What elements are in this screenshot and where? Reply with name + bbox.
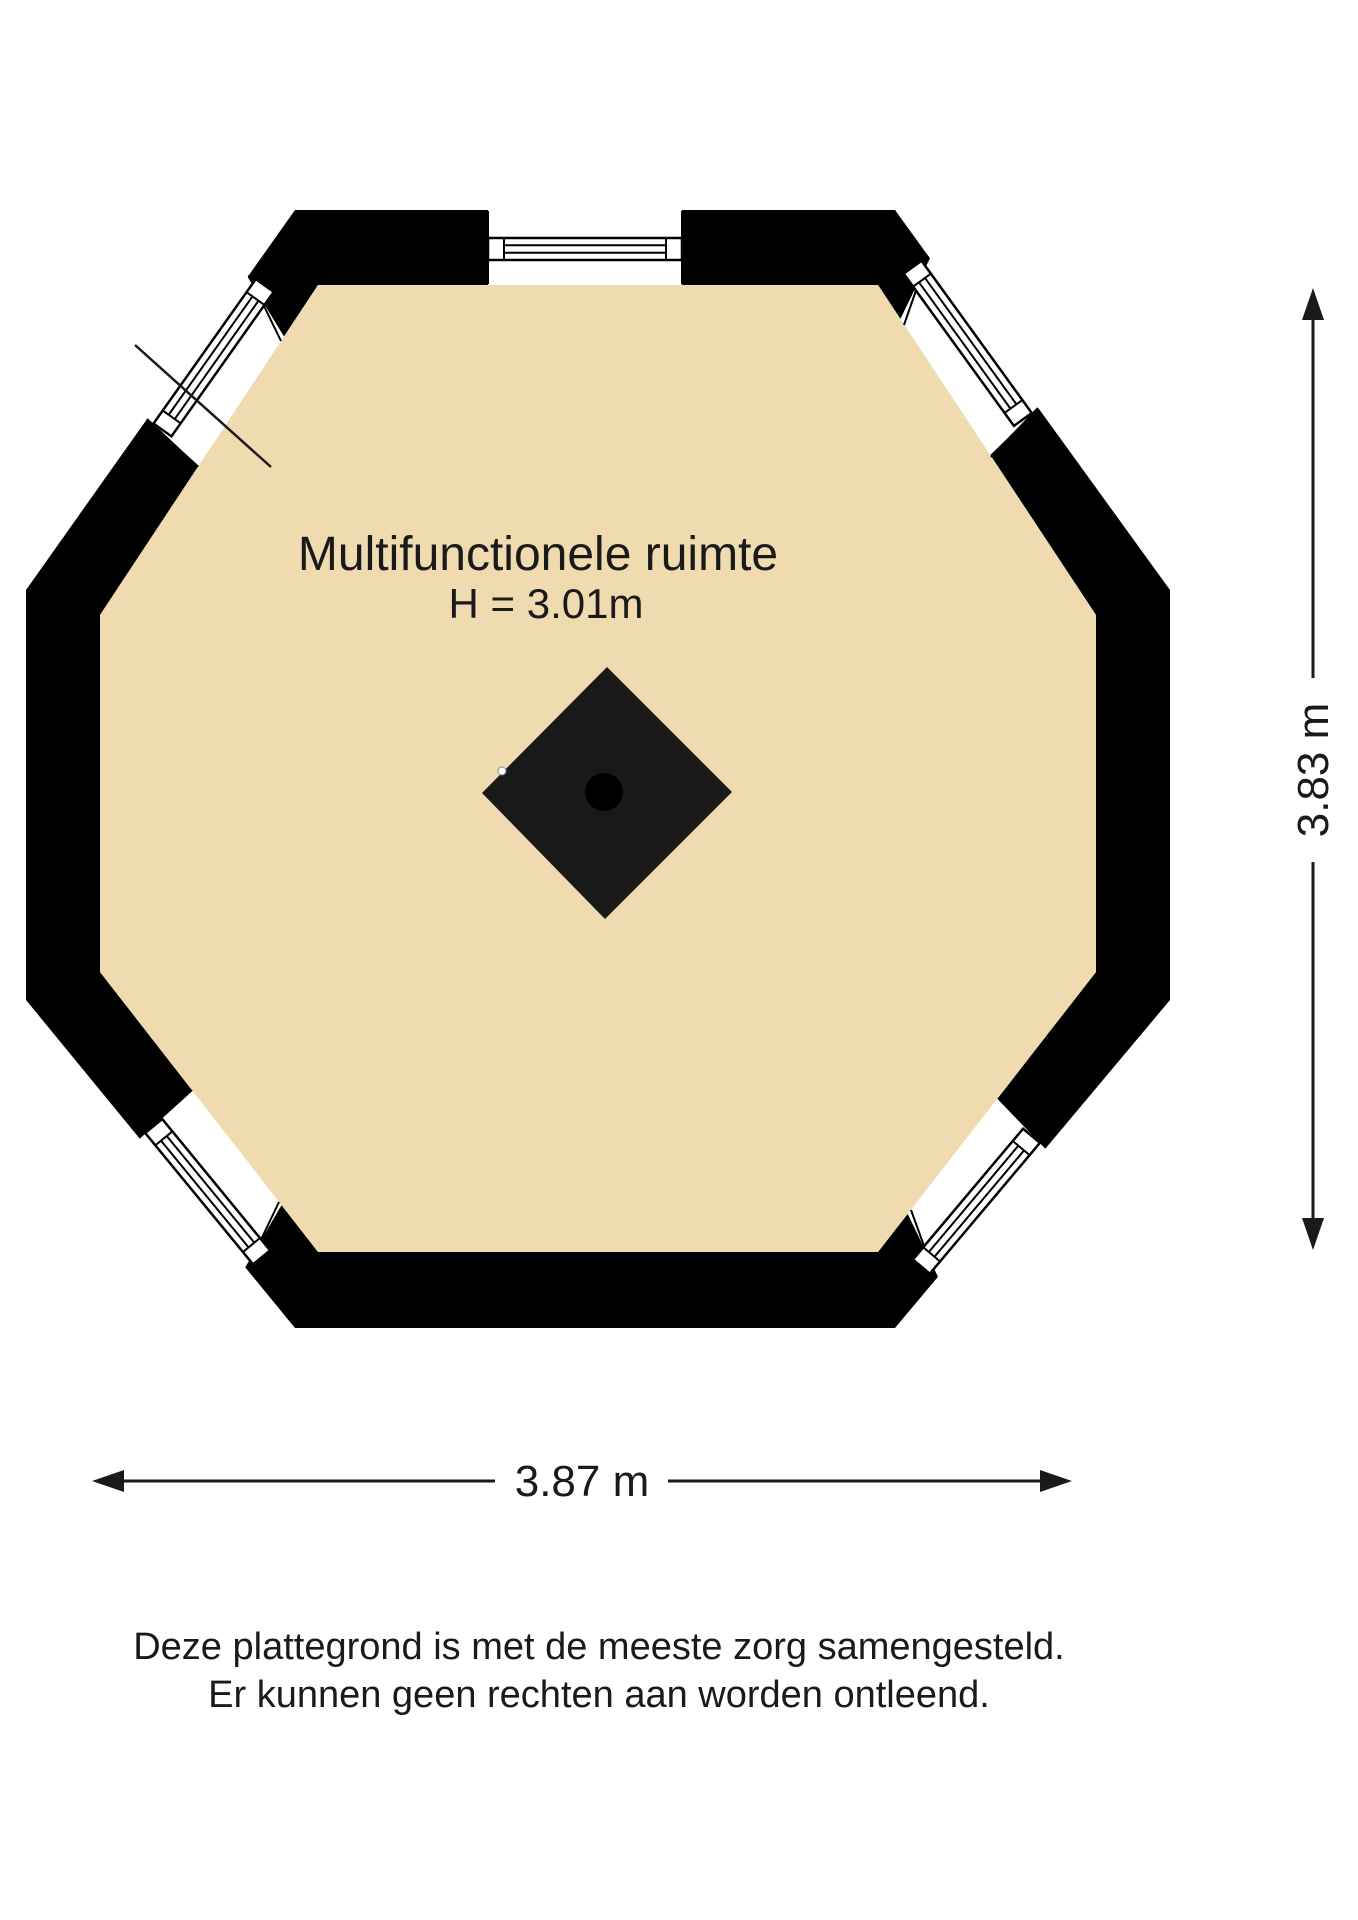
arrowhead-down-icon	[1302, 1218, 1324, 1250]
arrowhead-left-icon	[92, 1470, 124, 1492]
horizontal-dimension-label: 3.87 m	[515, 1457, 650, 1506]
dimension-horizontal: 3.87 m	[92, 1457, 1072, 1506]
floor-plan-svg: Multifunctionele ruimte H = 3.01m 3.83 m…	[0, 0, 1358, 1920]
chimney-flue-circle	[585, 773, 623, 811]
floorplan-page: Multifunctionele ruimte H = 3.01m 3.83 m…	[0, 0, 1358, 1920]
disclaimer-line-1: Deze plattegrond is met de meeste zorg s…	[133, 1626, 1065, 1668]
arrowhead-right-icon	[1040, 1470, 1072, 1492]
dimension-vertical: 3.83 m	[1289, 288, 1338, 1250]
column-hinge-dot	[498, 767, 506, 775]
room-height-label: H = 3.01m	[449, 580, 644, 627]
disclaimer-line-2: Er kunnen geen rechten aan worden ontlee…	[208, 1674, 990, 1716]
vertical-dimension-label: 3.83 m	[1289, 703, 1338, 838]
room-label: Multifunctionele ruimte	[298, 528, 778, 581]
window-top	[488, 238, 682, 260]
arrowhead-up-icon	[1302, 288, 1324, 320]
